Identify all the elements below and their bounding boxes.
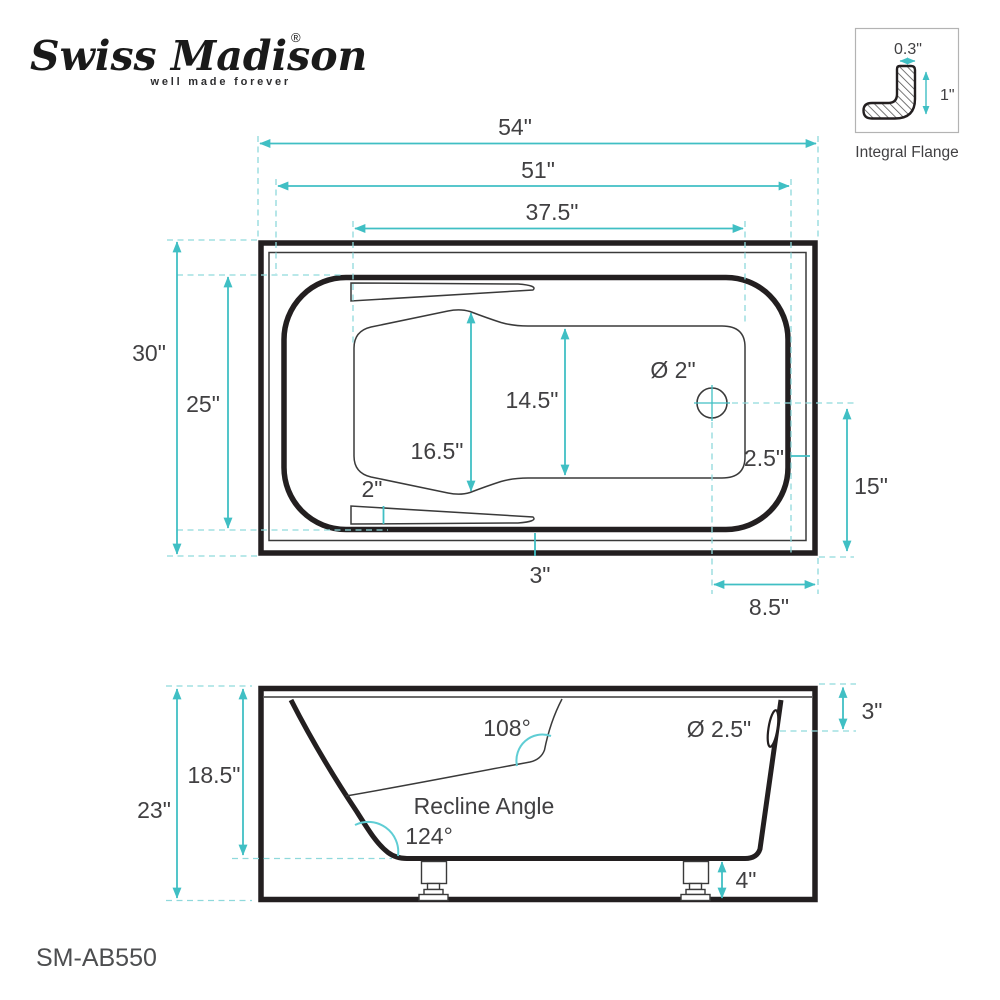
armrest-top <box>351 283 534 301</box>
brand-tagline: well made forever <box>149 76 291 88</box>
leg-left <box>419 862 448 901</box>
dim-37-5-label: 37.5" <box>526 199 579 225</box>
dim-54-label: 54" <box>498 114 532 140</box>
dim-14-5-label: 14.5" <box>506 387 559 413</box>
dim-3-label: 3" <box>530 562 551 588</box>
recline-angle-caption: Recline Angle <box>414 793 555 819</box>
top-view-dimension-lines <box>177 144 847 585</box>
armrest-bottom <box>351 506 534 524</box>
drain-diameter-label: Ø 2" <box>650 357 695 383</box>
flange-caption: Integral Flange <box>855 144 958 161</box>
brand-logo: Swiss Madison ® well made forever <box>30 30 367 88</box>
drain <box>694 385 730 421</box>
dim-25-label: 25" <box>186 391 220 417</box>
dim-4-label: 4" <box>736 867 757 893</box>
dim-16-5-label: 16.5" <box>411 438 464 464</box>
dim-30-label: 30" <box>132 340 166 366</box>
dim-2-label: 2" <box>362 476 383 502</box>
dim-2-5-label: 2.5" <box>744 445 784 471</box>
side-floor-edge <box>346 699 562 796</box>
flange-thickness-label: 0.3" <box>894 41 922 58</box>
dim-51-label: 51" <box>521 157 555 183</box>
leg-right <box>681 862 710 901</box>
dim-15-label: 15" <box>854 473 888 499</box>
side-view: 18.5" 23" 108° Recline Angle 124° Ø 2.5"… <box>137 684 882 901</box>
dim-18-5-label: 18.5" <box>188 762 241 788</box>
overflow-diameter-label: Ø 2.5" <box>687 716 751 742</box>
dim-23-label: 23" <box>137 797 171 823</box>
flange-height-label: 1" <box>940 87 955 104</box>
dim-8-5-label: 8.5" <box>749 594 789 620</box>
dim-3-side-label: 3" <box>862 698 883 724</box>
spec-sheet: Swiss Madison ® well made forever 0.3" 1… <box>0 0 1000 1000</box>
overflow-hole <box>766 710 781 748</box>
technical-drawing: Swiss Madison ® well made forever 0.3" 1… <box>0 0 1000 1000</box>
recline-angle-label: 124° <box>405 823 453 849</box>
model-number: SM-AB550 <box>36 944 157 972</box>
top-view: 54" 51" 37.5" 30" 25" 16.5" 14.5" Ø 2" 2… <box>132 114 888 620</box>
foot-angle-label: 108° <box>483 715 531 741</box>
flange-detail: 0.3" 1" Integral Flange <box>855 29 958 162</box>
registered-mark: ® <box>291 30 301 45</box>
brand-name: Swiss Madison <box>30 32 367 80</box>
